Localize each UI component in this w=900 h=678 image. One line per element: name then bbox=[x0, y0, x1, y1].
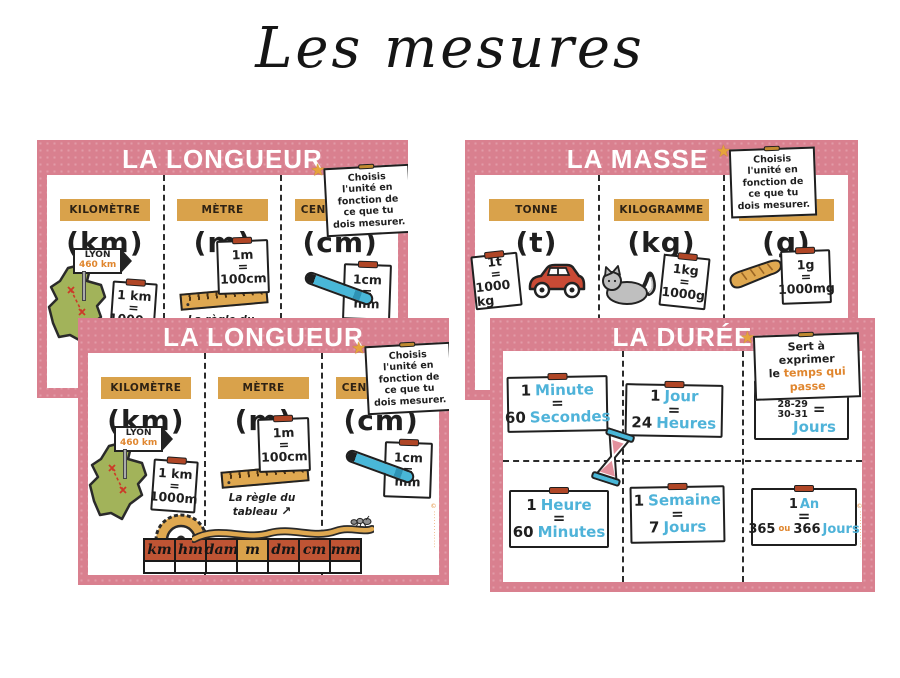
pin-icon bbox=[358, 261, 378, 269]
scale-cell-km: km bbox=[143, 538, 176, 562]
arrow-icon: ↗ bbox=[281, 504, 291, 518]
france-map-icon bbox=[85, 440, 149, 522]
duration-card-minute: 1Minute = 60Secondes bbox=[507, 375, 609, 433]
card-m-equivalence: 1m = 100cm bbox=[257, 417, 311, 473]
note-text: Choisis l'unité en fonction de ce que tu… bbox=[737, 153, 810, 211]
star-icon: ★ bbox=[310, 160, 326, 181]
sign-distance: 460 km bbox=[79, 261, 116, 271]
card-g-equivalence: 1g = 1000mg bbox=[780, 249, 832, 305]
sign-pole bbox=[82, 271, 86, 301]
sign-arrow-tip bbox=[162, 427, 173, 451]
pin-icon bbox=[125, 278, 145, 286]
poster-duree: LA DURÉE 1Minute = 60Secondes 1Jour = 24… bbox=[490, 318, 875, 592]
duration-card-an: 1An = 365ou366Jours bbox=[751, 488, 857, 546]
duration-card-heure: 1Heure = 60Minutes bbox=[509, 490, 609, 548]
pin-icon bbox=[664, 381, 684, 388]
card-line: 1000g bbox=[661, 285, 706, 303]
poster-longueur-front: LA LONGUEUR KILOMÈTRE (km) MÈTRE (m) CEN… bbox=[78, 318, 449, 585]
star-icon: ★ bbox=[716, 141, 732, 162]
pin-icon bbox=[399, 439, 419, 447]
star-icon: ★ bbox=[740, 328, 756, 349]
pin-icon bbox=[795, 247, 815, 255]
pin-icon bbox=[358, 164, 374, 170]
note-text: Choisis l'unité en fonction de ce que tu… bbox=[374, 349, 447, 408]
unit-label-chip: TONNE bbox=[489, 199, 585, 221]
road-sign: LYON460 km bbox=[114, 426, 173, 452]
pin-icon bbox=[547, 373, 567, 380]
sign-distance: 460 km bbox=[120, 439, 157, 449]
car-icon bbox=[525, 258, 587, 304]
unit-choice-note: ★ Choisis l'unité en fonction de ce que … bbox=[364, 342, 449, 415]
watermark: ©············· bbox=[856, 503, 863, 549]
note-accent-text: temps qui passe bbox=[784, 365, 846, 393]
card-tonne-equivalence: 1t = 1000 kg bbox=[470, 252, 522, 311]
pin-icon bbox=[232, 237, 252, 245]
unit-label-chip: KILOMÈTRE bbox=[101, 377, 191, 399]
unit-choice-note: ★ Choisis l'unité en fonction de ce que … bbox=[323, 164, 408, 237]
road-sign: LYON460 km bbox=[73, 248, 132, 274]
pin-icon bbox=[677, 252, 698, 261]
column-divider bbox=[742, 351, 744, 582]
unit-label-chip: KILOGRAMME bbox=[614, 199, 710, 221]
pin-icon bbox=[798, 332, 814, 338]
note-text: Choisis l'unité en fonction de ce que tu… bbox=[333, 171, 406, 230]
pin-icon bbox=[166, 456, 186, 464]
unit-label-chip: KILOMÈTRE bbox=[60, 199, 150, 221]
duration-card-jour: 1Jour = 24Heures bbox=[625, 383, 724, 438]
measures-board: Les mesures LA LONGUEUR KILOMÈTRE (km) M… bbox=[0, 0, 900, 678]
card-line: 100cm bbox=[220, 271, 267, 287]
card-km-equivalence: 1 km = 1000m bbox=[150, 458, 199, 513]
card-line: 100cm bbox=[261, 449, 308, 465]
card-kg-equivalence: 1kg = 1000g bbox=[658, 254, 710, 311]
unit-choice-note: ★ Choisis l'unité en fonction de ce que … bbox=[729, 147, 817, 219]
unit-scale-empty-row bbox=[145, 560, 362, 574]
star-icon: ★ bbox=[351, 338, 367, 359]
cat-icon bbox=[599, 264, 657, 306]
unit-abbreviation: (kg) bbox=[600, 226, 723, 259]
pin-icon bbox=[794, 485, 814, 492]
pin-icon bbox=[764, 146, 780, 152]
page-title: Les mesures bbox=[0, 16, 900, 81]
card-line: 1000m bbox=[149, 489, 198, 506]
tape-icon bbox=[192, 521, 374, 545]
card-line: 1000mg bbox=[778, 281, 835, 297]
pin-icon bbox=[273, 415, 293, 423]
note-text: Sert à exprimer bbox=[779, 339, 835, 367]
watermark: ©············· bbox=[430, 503, 437, 549]
duration-note: ★ Sert à exprimer le temps qui passe bbox=[753, 332, 861, 400]
sign-pole bbox=[123, 449, 127, 479]
card-m-equivalence: 1m = 100cm bbox=[216, 239, 270, 295]
unit-label-chip: MÈTRE bbox=[218, 377, 308, 399]
sign-arrow-tip bbox=[121, 249, 132, 273]
ruler-caption: La règle du tableau ↗ bbox=[212, 492, 312, 518]
month-day-counts: 28-2930-31 bbox=[778, 400, 808, 420]
row-divider bbox=[503, 460, 862, 462]
pin-icon bbox=[399, 342, 415, 348]
pin-icon bbox=[667, 483, 687, 490]
unit-label-chip: MÈTRE bbox=[177, 199, 267, 221]
card-line: 1000 kg bbox=[475, 277, 521, 309]
pin-icon bbox=[549, 487, 569, 494]
duration-card-semaine: 1Semaine = 7Jours bbox=[630, 485, 726, 544]
ant-icon bbox=[350, 514, 372, 528]
